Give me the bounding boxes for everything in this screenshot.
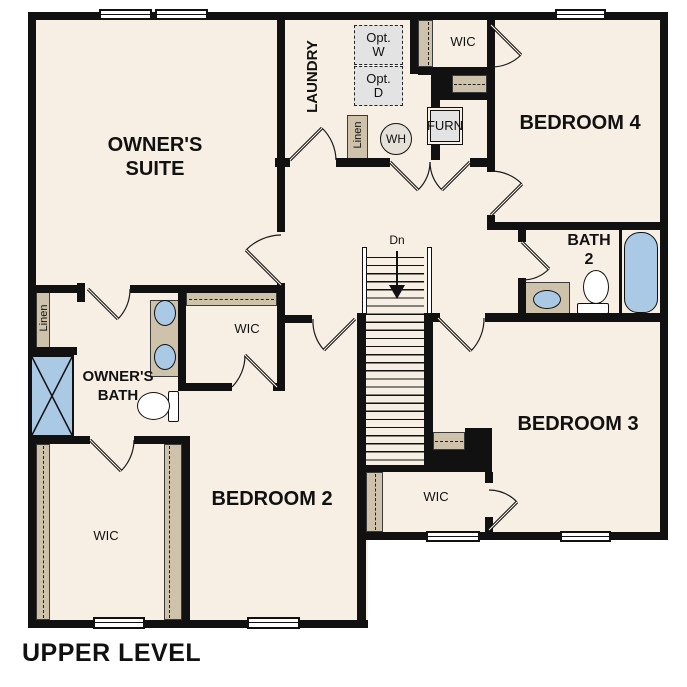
- rod-dash-wic-top: [428, 22, 429, 65]
- wall: [277, 20, 285, 232]
- closet-rod-wic-top: [418, 20, 433, 67]
- wall: [424, 313, 433, 453]
- floor-plan: Opt. W Opt. D: [0, 0, 687, 687]
- wall: [178, 285, 186, 391]
- floor-area-lower-left: [28, 540, 368, 628]
- bathtub-icon: [624, 232, 658, 313]
- water-heater-label: WH: [386, 132, 406, 146]
- wall: [452, 93, 487, 100]
- wic-bottom-left-label: WIC: [80, 528, 132, 543]
- wic-middle-label: WIC: [222, 321, 272, 336]
- wall: [178, 383, 232, 391]
- stair-treads: [366, 250, 424, 466]
- rod-dash-wic-bl-left: [43, 446, 44, 618]
- furnace-label: FURN: [423, 118, 467, 133]
- window: [560, 531, 611, 542]
- owners-suite-label-line2: SUITE: [60, 157, 250, 181]
- wall: [28, 347, 77, 355]
- wall: [28, 620, 368, 628]
- rod-dash-wic-bl-right: [169, 446, 170, 618]
- stair-rail-right: [427, 247, 432, 315]
- wall: [487, 222, 668, 230]
- wall: [485, 517, 493, 532]
- toilet-tank-icon: [577, 303, 609, 314]
- bath2-label: BATH 2: [557, 231, 621, 269]
- wall: [362, 532, 668, 540]
- stair-arrow-head: [389, 285, 405, 299]
- window: [155, 9, 208, 20]
- window: [555, 9, 606, 20]
- opt-dryer-label-1: Opt.: [366, 72, 391, 86]
- wall: [182, 436, 190, 628]
- wall: [277, 283, 285, 391]
- stairs-dn-label: Dn: [384, 233, 410, 247]
- wall: [418, 67, 487, 75]
- wall: [485, 472, 493, 483]
- opt-dryer-label-2: D: [374, 86, 383, 100]
- window: [93, 617, 145, 629]
- owners-bath-label: OWNER'S BATH: [76, 367, 160, 405]
- owners-bath-label-line2: BATH: [76, 386, 160, 405]
- wic-top-label: WIC: [436, 34, 490, 49]
- wic-bottom-right-label: WIC: [410, 489, 462, 504]
- owners-bath-label-line1: OWNER'S: [76, 367, 160, 386]
- wall: [485, 313, 668, 322]
- wall: [77, 283, 85, 302]
- water-heater-icon: WH: [380, 123, 412, 155]
- opt-washer-box: Opt. W: [354, 25, 403, 65]
- sink-icon: [533, 290, 561, 309]
- wall: [28, 285, 84, 293]
- toilet-bowl-icon: [583, 270, 609, 304]
- laundry-label: LAUNDRY: [304, 19, 321, 134]
- sink-icon: [154, 300, 176, 326]
- wall: [518, 230, 526, 242]
- plan-title: UPPER LEVEL: [22, 639, 302, 668]
- wall: [130, 285, 277, 293]
- wall: [275, 158, 290, 167]
- wall: [283, 315, 312, 323]
- floor-area-upper: [28, 12, 668, 540]
- rod-dash-wic-middle: [189, 299, 274, 300]
- stair-rail-left: [362, 247, 367, 315]
- shelf-dash-understair: [435, 441, 463, 442]
- owners-suite-label: OWNER'S SUITE: [60, 133, 250, 181]
- wall: [431, 72, 452, 100]
- bath2-label-line2: 2: [557, 250, 621, 269]
- stair-arrow-line: [396, 251, 398, 287]
- shower-icon: [30, 355, 74, 437]
- owners-suite-label-line1: OWNER'S: [60, 133, 250, 157]
- linen-laundry-label: Linen: [352, 104, 364, 166]
- window: [99, 9, 152, 20]
- wall: [28, 436, 90, 444]
- rod-dash-wic-br: [375, 474, 376, 530]
- bedroom4-label: BEDROOM 4: [490, 112, 670, 135]
- linen-bath-label: Linen: [38, 288, 50, 348]
- wall: [424, 450, 492, 472]
- opt-washer-label-2: W: [372, 45, 384, 59]
- closet-rod-wic-bl-right: [164, 444, 182, 620]
- window: [426, 531, 480, 542]
- bedroom3-label: BEDROOM 3: [488, 413, 668, 436]
- opt-dryer-box: Opt. D: [354, 66, 403, 106]
- wall: [273, 383, 283, 391]
- wall: [28, 12, 36, 628]
- bedroom2-label: BEDROOM 2: [182, 488, 362, 511]
- wall: [357, 313, 366, 620]
- wall: [660, 12, 668, 540]
- opt-washer-label-1: Opt.: [366, 31, 391, 45]
- bath2-label-line1: BATH: [557, 231, 621, 250]
- shelf-dash-wic-top: [454, 84, 485, 85]
- wall: [410, 17, 418, 74]
- wall: [366, 465, 424, 472]
- window: [247, 617, 300, 629]
